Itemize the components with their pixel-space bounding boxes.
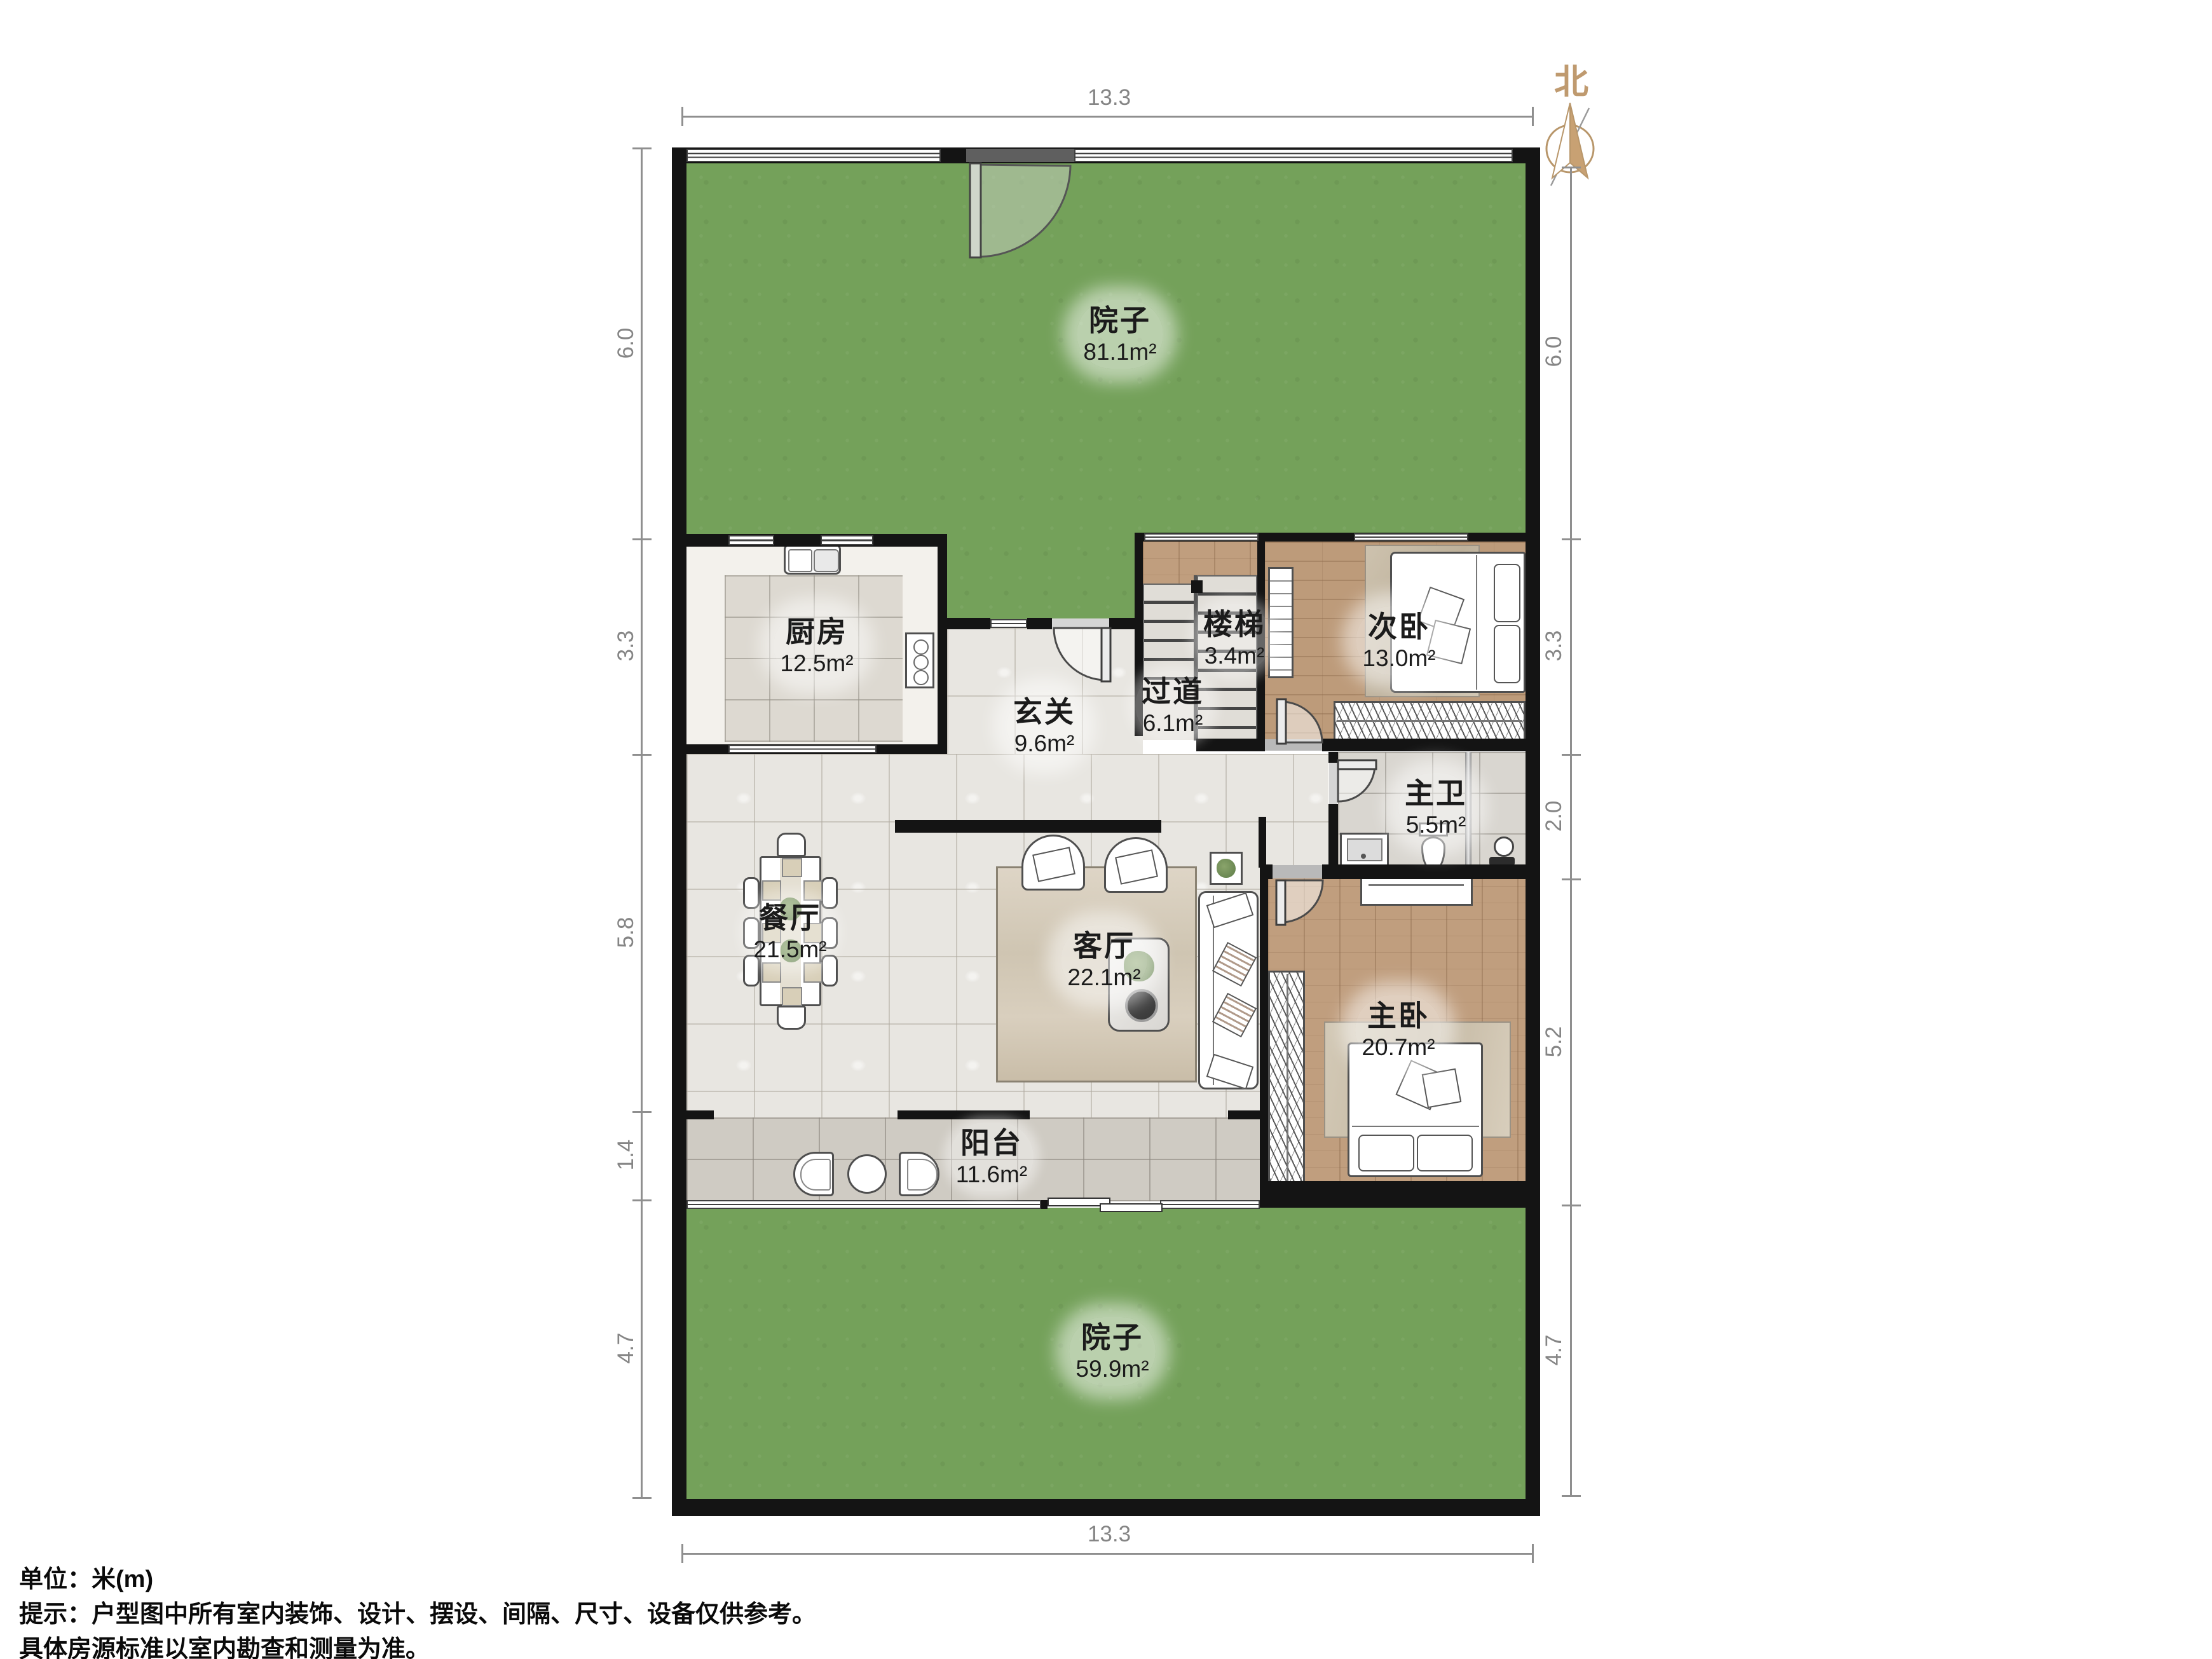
dim-label-right-4: 5.2 <box>1541 1010 1567 1074</box>
dim-tick <box>1562 1495 1581 1497</box>
room-label-bedroom2: 次卧13.0m² <box>1326 606 1472 675</box>
north-label: 北 <box>1548 53 1594 104</box>
room-label-yard-top: 院子81.1m² <box>1047 300 1193 369</box>
dim-label-right-1: 6.0 <box>1541 320 1567 383</box>
dim-tick <box>1532 107 1534 126</box>
room-label-living: 客厅22.1m² <box>1031 925 1177 994</box>
room-label-bathroom: 主卫5.5m² <box>1363 773 1509 842</box>
dimension-line-right <box>1570 167 1572 1497</box>
dim-label-left-2: 3.3 <box>613 614 639 678</box>
bedroom2-door-leaf-icon <box>1277 699 1286 744</box>
dim-label-right-2: 3.3 <box>1541 614 1567 678</box>
dim-tick <box>1562 878 1581 880</box>
dim-tick <box>681 107 683 126</box>
dim-label-bottom: 13.3 <box>1077 1522 1141 1547</box>
dimension-line-left <box>641 147 643 1499</box>
dim-tick <box>681 1544 683 1563</box>
room-label-dining: 餐厅21.5m² <box>717 898 863 966</box>
yard-door-leaf-icon <box>970 163 981 257</box>
master-door-leaf-icon <box>1276 880 1285 925</box>
footer-note1: 提示：户型图中所有室内装饰、设计、摆设、间隔、尺寸、设备仅供参考。 <box>19 1597 816 1632</box>
dimension-line-top <box>682 116 1534 118</box>
floorplan-canvas: 院子81.1m² 厨房12.5m² 玄关9.6m² 过道6.1m² 楼梯3.4m… <box>0 0 2212 1659</box>
dim-label-right-5: 4.7 <box>1541 1318 1567 1382</box>
dim-tick <box>632 147 652 149</box>
room-label-hall: 玄关9.6m² <box>971 692 1117 760</box>
dim-tick <box>1562 1205 1581 1206</box>
hall-door-swing-icon <box>1054 628 1106 680</box>
dim-label-left-1: 6.0 <box>613 311 639 375</box>
footer-note2: 具体房源标准以室内勘查和测量为准。 <box>19 1632 816 1659</box>
bedroom2-door-swing-icon <box>1281 702 1322 742</box>
room-label-stairs: 楼梯3.4m² <box>1161 604 1307 672</box>
footer-notes: 单位：米(m) 提示：户型图中所有室内装饰、设计、摆设、间隔、尺寸、设备仅供参考… <box>19 1562 816 1659</box>
room-label-kitchen: 厨房12.5m² <box>744 611 890 680</box>
dim-label-left-3: 5.8 <box>613 901 639 964</box>
dim-label-top: 13.3 <box>1077 85 1141 111</box>
room-label-corridor: 过道6.1m² <box>1100 671 1246 740</box>
dim-label-left-5: 4.7 <box>613 1316 639 1380</box>
dimension-line-bottom <box>682 1553 1534 1555</box>
room-label-balcony: 阳台11.6m² <box>918 1123 1065 1191</box>
dim-tick <box>632 538 652 540</box>
master-door-swing-icon <box>1281 880 1323 922</box>
room-label-yard-bottom: 院子59.9m² <box>1039 1317 1185 1386</box>
dim-tick <box>632 754 652 756</box>
dim-tick <box>632 1497 652 1499</box>
dim-label-right-3: 2.0 <box>1541 784 1567 848</box>
yard-door-swing-icon <box>978 165 1070 257</box>
dim-tick <box>1532 1544 1534 1563</box>
dim-tick <box>632 1111 652 1113</box>
dim-tick <box>632 1199 652 1201</box>
door-swings-layer <box>0 0 2212 1659</box>
dim-tick <box>1562 538 1581 540</box>
footer-unit: 单位：米(m) <box>19 1562 816 1597</box>
bath-door-leaf-icon <box>1338 760 1376 769</box>
dim-label-left-4: 1.4 <box>613 1123 639 1187</box>
room-label-master: 主卧20.7m² <box>1325 995 1471 1064</box>
dim-tick <box>1562 167 1581 168</box>
dim-tick <box>1562 754 1581 756</box>
